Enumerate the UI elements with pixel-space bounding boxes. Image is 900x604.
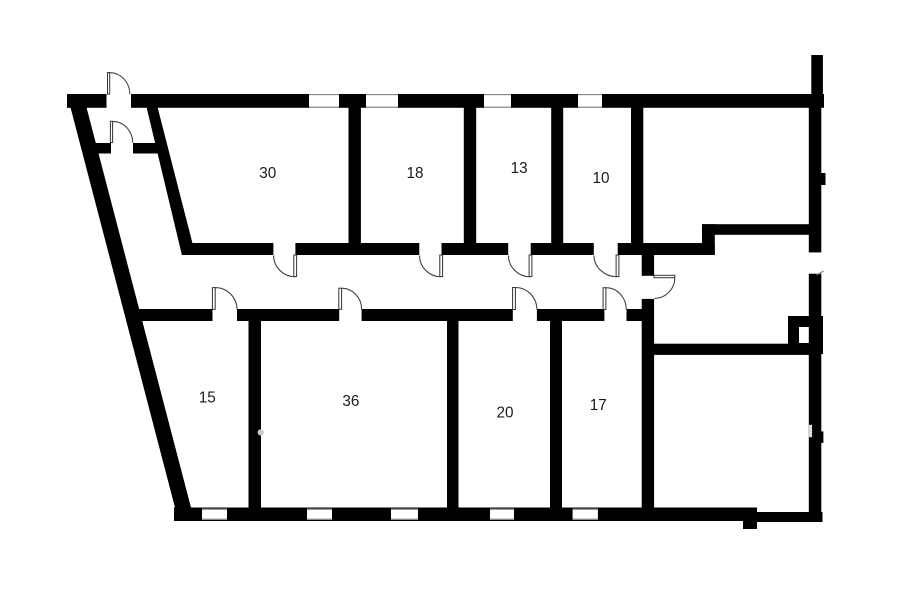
svg-text:18: 18 <box>406 165 423 182</box>
svg-text:17: 17 <box>590 397 607 414</box>
svg-text:20: 20 <box>496 405 513 422</box>
svg-text:15: 15 <box>199 390 216 407</box>
svg-text:30: 30 <box>259 165 276 182</box>
svg-text:36: 36 <box>342 393 359 410</box>
svg-text:13: 13 <box>511 160 528 177</box>
svg-text:10: 10 <box>592 170 609 187</box>
